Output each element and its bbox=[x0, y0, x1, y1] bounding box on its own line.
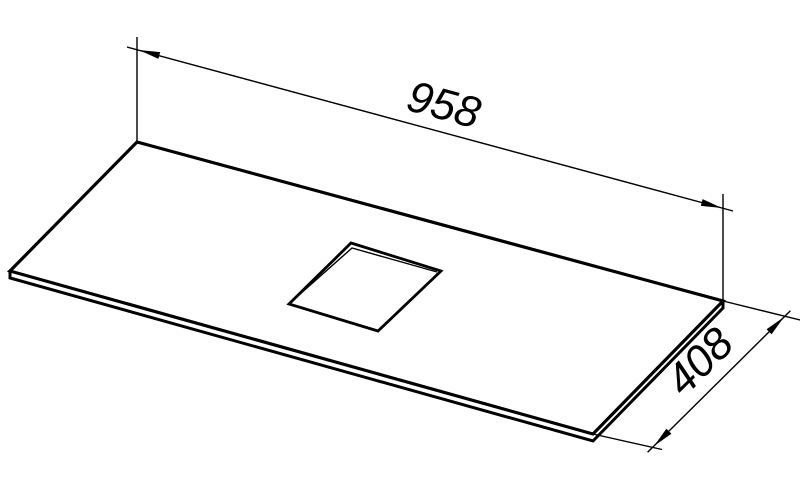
depth-arrowhead-top bbox=[767, 317, 784, 334]
technical-drawing-canvas: 958 408 bbox=[0, 0, 800, 479]
depth-arrowhead-bottom bbox=[654, 429, 671, 446]
length-arrowhead-left bbox=[139, 50, 160, 59]
depth-extension-line-top bbox=[723, 301, 800, 320]
length-dimension-label: 958 bbox=[402, 72, 486, 139]
length-arrowhead-right bbox=[701, 199, 722, 208]
depth-extension-line-bottom bbox=[593, 434, 662, 450]
technical-drawing-page: 958 408 bbox=[0, 0, 800, 479]
